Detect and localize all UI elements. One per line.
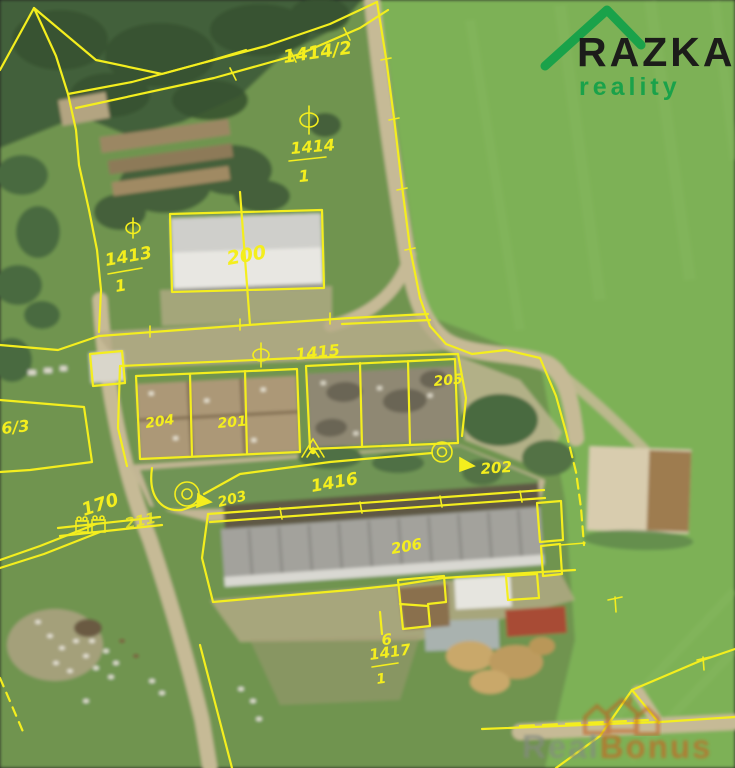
brand-name: RAZKA — [577, 29, 735, 75]
aerial-map: 1414/2 1414 1 1413 1 200 1415 204 201 20… — [0, 0, 735, 768]
watermark-bonus: Bonus — [600, 728, 713, 765]
watermark-text: RealBonus — [522, 728, 712, 765]
svg-text:1: 1 — [298, 166, 311, 186]
label-202: 202 — [480, 458, 512, 478]
label-205: 205 — [433, 371, 464, 390]
label-land-use-6: 6 — [381, 630, 393, 649]
sandy-paddock — [583, 446, 696, 552]
building-red-roof — [505, 606, 567, 637]
watermark-real: Real — [522, 728, 600, 765]
brand-tagline: reality — [579, 73, 681, 101]
label-201: 201 — [217, 413, 248, 431]
debris-patch — [398, 584, 450, 630]
svg-text:1414: 1414 — [290, 135, 336, 158]
listing-photo: 1414/2 1414 1 1413 1 200 1415 204 201 20… — [0, 0, 735, 768]
label-6-3: 6/3 — [0, 416, 30, 438]
building-white — [454, 576, 512, 610]
